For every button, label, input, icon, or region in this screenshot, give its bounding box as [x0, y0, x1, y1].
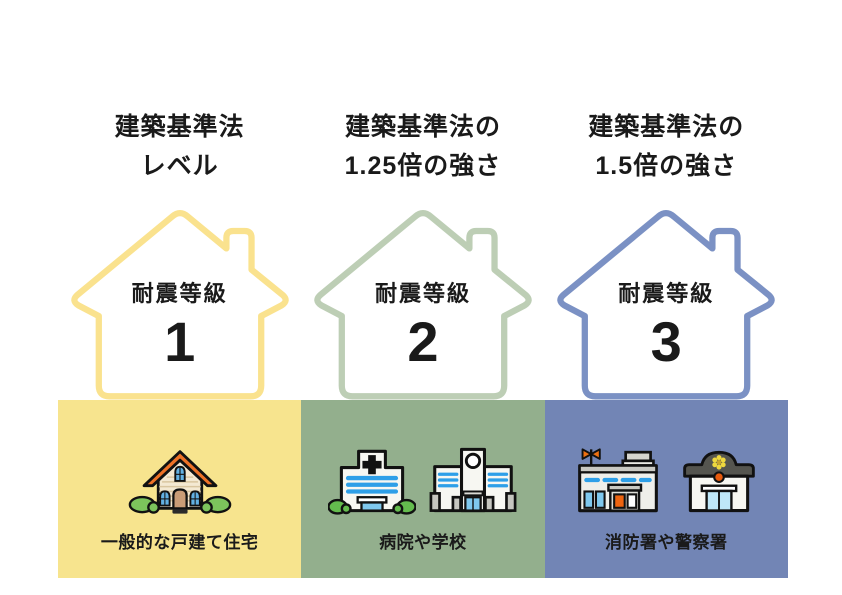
header-line-1: 建築基準法の [545, 108, 788, 147]
panel-3-icons [572, 438, 761, 520]
header-line-1: 建築基準法の [301, 108, 544, 147]
grade-label: 耐震等級 [58, 276, 301, 308]
grade-number: 1 [58, 314, 301, 370]
detached-house-icon [128, 440, 232, 520]
grade-2-text: 耐震等級 2 [301, 276, 544, 370]
grade-label: 耐震等級 [545, 276, 788, 308]
column-grade-2: 建築基準法の 1.25倍の強さ 耐震等級 2 [301, 0, 544, 595]
seismic-grade-infographic: 建築基準法 レベル 耐震等級 1 [58, 0, 788, 595]
grade-number: 3 [545, 314, 788, 370]
panel-1-caption: 一般的な戸建て住宅 [101, 528, 259, 553]
fire-station-icon [572, 440, 664, 520]
grade-number: 2 [301, 314, 544, 370]
panel-2-icons [328, 438, 517, 520]
grade-3-text: 耐震等級 3 [545, 276, 788, 370]
panel-3-caption: 消防署や警察署 [605, 528, 728, 553]
column-grade-3: 建築基準法の 1.5倍の強さ 耐震等級 3 [545, 0, 788, 595]
grade-1-text: 耐震等級 1 [58, 276, 301, 370]
panel-2-caption: 病院や学校 [379, 528, 467, 553]
grade-label: 耐震等級 [301, 276, 544, 308]
header-line-1: 建築基準法 [58, 108, 301, 147]
column-2-header: 建築基準法の 1.25倍の強さ [301, 108, 544, 186]
header-line-2: 1.5倍の強さ [545, 147, 788, 186]
header-line-2: レベル [58, 147, 301, 186]
school-icon [429, 440, 517, 520]
police-station-icon [677, 440, 761, 520]
header-line-2: 1.25倍の強さ [301, 147, 544, 186]
column-1-header: 建築基準法 レベル [58, 108, 301, 186]
panel-grade-3: 消防署や警察署 [545, 400, 788, 578]
panel-grade-2: 病院や学校 [301, 400, 544, 578]
panel-grade-1: 一般的な戸建て住宅 [58, 400, 301, 578]
column-grade-1: 建築基準法 レベル 耐震等級 1 [58, 0, 301, 595]
panel-1-icons [128, 438, 232, 520]
hospital-icon [328, 440, 416, 520]
column-3-header: 建築基準法の 1.5倍の強さ [545, 108, 788, 186]
